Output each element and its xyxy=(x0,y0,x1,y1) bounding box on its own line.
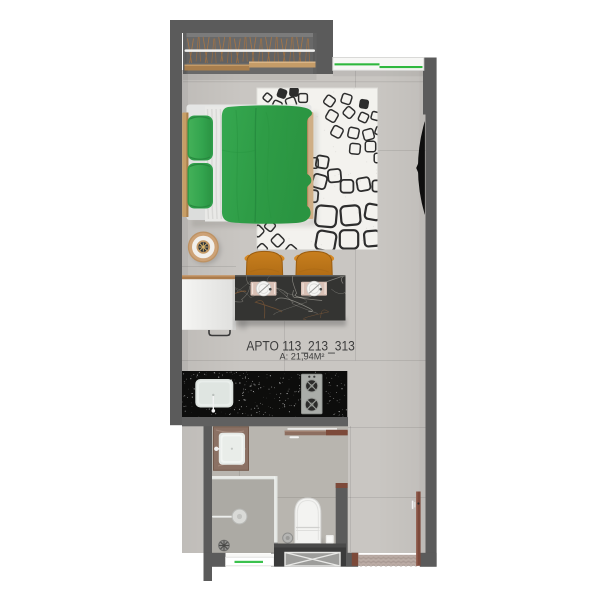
svg-text:A: 21,94M²: A: 21,94M² xyxy=(280,351,325,361)
